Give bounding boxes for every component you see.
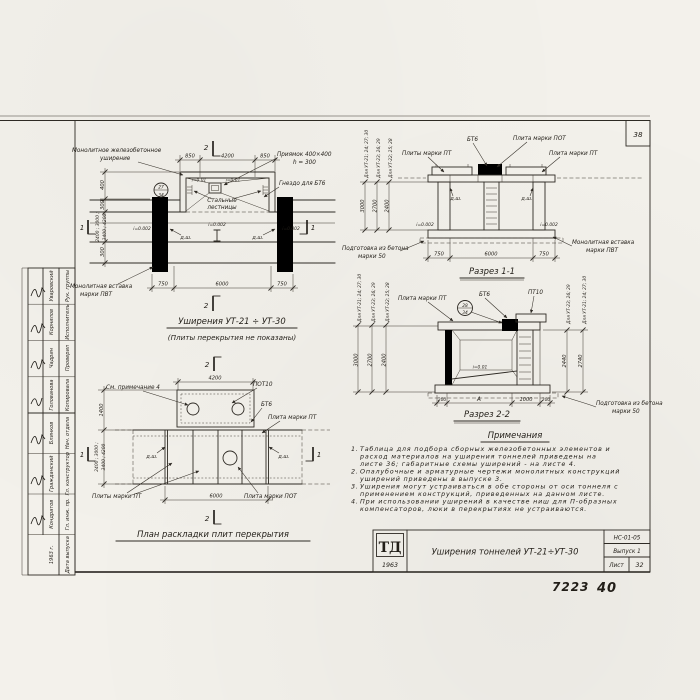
dim-variant-label: Для УТ-23; 26; 29 xyxy=(371,282,377,323)
detail-number: 27 xyxy=(158,185,164,191)
dim-label: 6000 xyxy=(210,494,223,500)
section-mark-2: 2 xyxy=(205,360,210,369)
issue-label: Выпуск 1 xyxy=(613,549,640,555)
dim-label: 750 xyxy=(539,252,549,258)
detail-sheet: 34 xyxy=(158,192,164,198)
joint-label: д.ш. xyxy=(145,454,157,460)
dim-variant-label: Для УТ-22; 25; 28 xyxy=(388,138,394,179)
plan-subtitle: (Плиты перекрытия не показаны) xyxy=(168,333,297,342)
dim-label: 4200 xyxy=(209,376,222,382)
stamp-name: Блинков xyxy=(49,422,55,445)
stamp-name: Гражданский xyxy=(49,455,55,492)
note-number: 2. xyxy=(351,468,359,476)
stamp-name: Кондратов xyxy=(49,500,55,529)
slab-plan-title: План раскладки плит перекрытия xyxy=(137,529,289,539)
drawing-label: марки ПВТ xyxy=(586,248,619,254)
note-line: компенсаторов, люки в перекрытиях не уст… xyxy=(360,505,587,513)
note-number: 4. xyxy=(351,498,359,506)
dim-variant-label: Для УТ-23; 26; 29 xyxy=(376,138,382,179)
dim-label: 3000 xyxy=(360,200,366,213)
monolithic-insert xyxy=(277,197,293,272)
stamp-role: Гл. конструктор xyxy=(65,452,71,495)
drawing-sheet: 38 Рук. группы Исполнитель Проверил Копи… xyxy=(0,0,700,700)
dim-variant-label: Для УТ-21; 24; 27; 30 xyxy=(582,276,588,325)
dim-label: 2740 xyxy=(578,355,584,368)
section-mark-1: 1 xyxy=(311,223,316,232)
section-title: Разрез 2-2 xyxy=(464,409,510,419)
dim-label: 200 xyxy=(438,397,447,403)
section-mark-2: 2 xyxy=(204,301,209,310)
stamp-name: Корнилов xyxy=(49,309,55,335)
hatch-opening xyxy=(187,403,199,415)
stamp-name: Голованова xyxy=(49,379,55,410)
document-code: НС-01-05 xyxy=(614,536,641,542)
hatch-opening xyxy=(223,451,237,465)
drawing-label: Гнездо для БТ6 xyxy=(279,181,326,187)
drawing-label: БТ6 xyxy=(479,292,490,298)
drawing-label: БТ6 xyxy=(261,402,272,408)
notes: Примечания 1. Таблица для подбора сборны… xyxy=(351,430,620,513)
sheet-number: 32 xyxy=(635,562,643,569)
handwritten-code: 7223 xyxy=(552,580,589,594)
stamp-role: Нач. отдела xyxy=(65,417,71,449)
dim-label: 2700 xyxy=(368,354,374,367)
slope-label: i=0.01 xyxy=(192,178,207,184)
note-number: 1. xyxy=(351,445,359,453)
dim-label: 750 xyxy=(277,282,287,288)
joint-label: д.ш. xyxy=(277,454,289,460)
dim-label: 6000 xyxy=(216,282,229,288)
logo-year: 1963 xyxy=(382,562,398,569)
notes-title: Примечания xyxy=(488,430,543,440)
org-logo: ТД xyxy=(379,540,402,556)
signature xyxy=(31,398,42,406)
dim-label: 200 xyxy=(542,397,551,403)
section-2-2-drawing: 3000 2700 2400 Для УТ-21; 24; 27; 30 Для… xyxy=(353,274,663,423)
plan-view-drawing: 2 2 850 4200 850 i=0.01 i=0.01 Стальные … xyxy=(70,141,335,342)
drawing-label: Монолитная вставка xyxy=(70,284,133,290)
dim-label: 3400 ; 4200 xyxy=(101,443,107,470)
slope-label: i=0.002 xyxy=(282,226,300,232)
drawing-label: Подготовка из бетона xyxy=(342,246,409,252)
detail-sheet: 34 xyxy=(462,310,468,316)
stamp-role: Исполнитель xyxy=(65,304,71,339)
section-mark-1: 1 xyxy=(317,450,322,459)
left-stamp: Рук. группы Исполнитель Проверил Копиров… xyxy=(22,268,75,575)
drawing-label: Монолитная вставка xyxy=(572,240,635,246)
slope-label: i=0.002 xyxy=(208,222,226,228)
dim-label: 4200 xyxy=(221,154,234,160)
slope-label: i=0.002 xyxy=(133,226,151,232)
stamp-role: Проверил xyxy=(65,344,71,371)
hatch-opening xyxy=(232,403,244,415)
drawing-label: Монолитное железобетонное xyxy=(72,148,162,154)
drawing-label: БТ6 xyxy=(467,137,478,143)
drawing-label: Приямок 400×400 xyxy=(277,152,332,158)
dim-variant-label: Для УТ-23; 26; 29 xyxy=(566,284,572,325)
stamp-name: Чадрин xyxy=(49,347,55,368)
section-title: Разрез 1-1 xyxy=(469,266,515,276)
drawing-label: Плита марки ПТ xyxy=(268,415,317,421)
dim-label: 2400 xyxy=(382,354,388,367)
dim-label: 750 xyxy=(158,282,168,288)
dim-label: 1400 xyxy=(99,404,105,417)
dim-label: 6000 xyxy=(485,252,498,258)
dim-label: 2700 xyxy=(373,200,379,213)
handwritten-page: 40 xyxy=(596,581,617,596)
slope-label: i=0.002 xyxy=(540,222,558,228)
drawing-label: Плита марки ПОТ xyxy=(513,136,566,142)
drawing-label: Плита марки ПТ xyxy=(549,151,598,157)
dim-label: 850 xyxy=(260,154,270,160)
drawing-label: Плиты марки ПТ xyxy=(402,151,452,157)
page-number: 38 xyxy=(633,130,643,139)
drawing-title: Уширения тоннелей УТ-21÷УТ-30 xyxy=(432,547,579,557)
dim-label: 300 xyxy=(100,247,106,257)
dim-variant-label: Для УТ-21; 24; 27; 30 xyxy=(364,130,370,179)
section-mark-1: 1 xyxy=(80,450,85,459)
slope-label: i=0.01 xyxy=(473,365,488,371)
drawing-label: Подготовка из бетона xyxy=(596,401,663,407)
drawing-label: марки 50 xyxy=(358,254,386,260)
drawing-label: ПТ10 xyxy=(528,290,543,296)
cut-wall xyxy=(445,330,452,385)
blueprint-photo: 38 Рук. группы Исполнитель Проверил Копи… xyxy=(0,0,700,700)
drawing-label: марки 50 xyxy=(612,409,640,415)
dim-label: 3000 xyxy=(354,354,360,367)
sheet-word: Лист xyxy=(608,563,624,569)
drawing-label: ПОТ10 xyxy=(253,382,273,388)
section-mark-1: 1 xyxy=(80,223,85,232)
stamp-role: Копировала xyxy=(65,379,71,411)
joint-label: д.ш. xyxy=(251,235,263,241)
dim-label: 400 xyxy=(100,180,106,190)
joint-label: д.ш. xyxy=(449,196,461,202)
section-mark-2: 2 xyxy=(204,143,209,152)
slab-layout-plan: 2 4200 См. примечание 4 ПОТ10 БТ6 Плита … xyxy=(80,357,330,541)
slope-label: i=0.002 xyxy=(416,222,434,228)
dim-label: 2440 xyxy=(562,355,568,368)
stamp-role: Дата выпуска xyxy=(65,536,71,574)
plan-title: Уширения УТ-21 ÷ УТ-30 xyxy=(178,316,285,326)
stamp-name: Уваровский xyxy=(49,270,55,302)
stamp-name: 1963 г. xyxy=(49,545,55,564)
drawing-label: уширение xyxy=(99,156,131,162)
dim-label: 2400 ; 3000 ; xyxy=(94,442,100,472)
section-mark-2: 2 xyxy=(205,514,210,523)
joint-label: д.ш. xyxy=(520,196,532,202)
dim-label: 1000 xyxy=(520,397,533,403)
detail-number: 28 xyxy=(462,303,468,309)
title-block: ТД 1963 Уширения тоннелей УТ-21÷УТ-30 НС… xyxy=(373,530,650,596)
drawing-label: Плита марки ПТ xyxy=(398,296,447,302)
dim-label: А xyxy=(476,397,481,403)
dim-label: 3400 ; 4200 xyxy=(102,213,108,240)
drawing-label: Плиты марки ПТ xyxy=(92,494,142,500)
dim-label: 300 xyxy=(100,200,106,210)
drawing-label: марки ПВТ xyxy=(80,292,113,298)
monolithic-insert xyxy=(152,197,168,272)
joint-label: д.ш. xyxy=(179,235,191,241)
dim-variant-label: Для УТ-21; 24; 27; 30 xyxy=(357,274,363,323)
note-number: 3. xyxy=(351,483,359,491)
drawing-label: Плита марки ПОТ xyxy=(244,494,297,500)
dim-label: 850 xyxy=(185,154,195,160)
dim-label: 2400 xyxy=(385,200,391,213)
drawing-label: лестницы xyxy=(206,205,237,211)
section-1-1-drawing: 3000 2700 2400 Для УТ-21; 24; 27; 30 Для… xyxy=(342,130,642,280)
dim-label: 2400 ; 3000 ; xyxy=(95,212,101,242)
dim-variant-label: Для УТ-22; 25; 28 xyxy=(385,282,391,323)
dim-label: 750 xyxy=(434,252,444,258)
stamp-role: Гл. инж. пр. xyxy=(65,498,71,530)
drawing-label: h = 300 xyxy=(293,160,316,166)
